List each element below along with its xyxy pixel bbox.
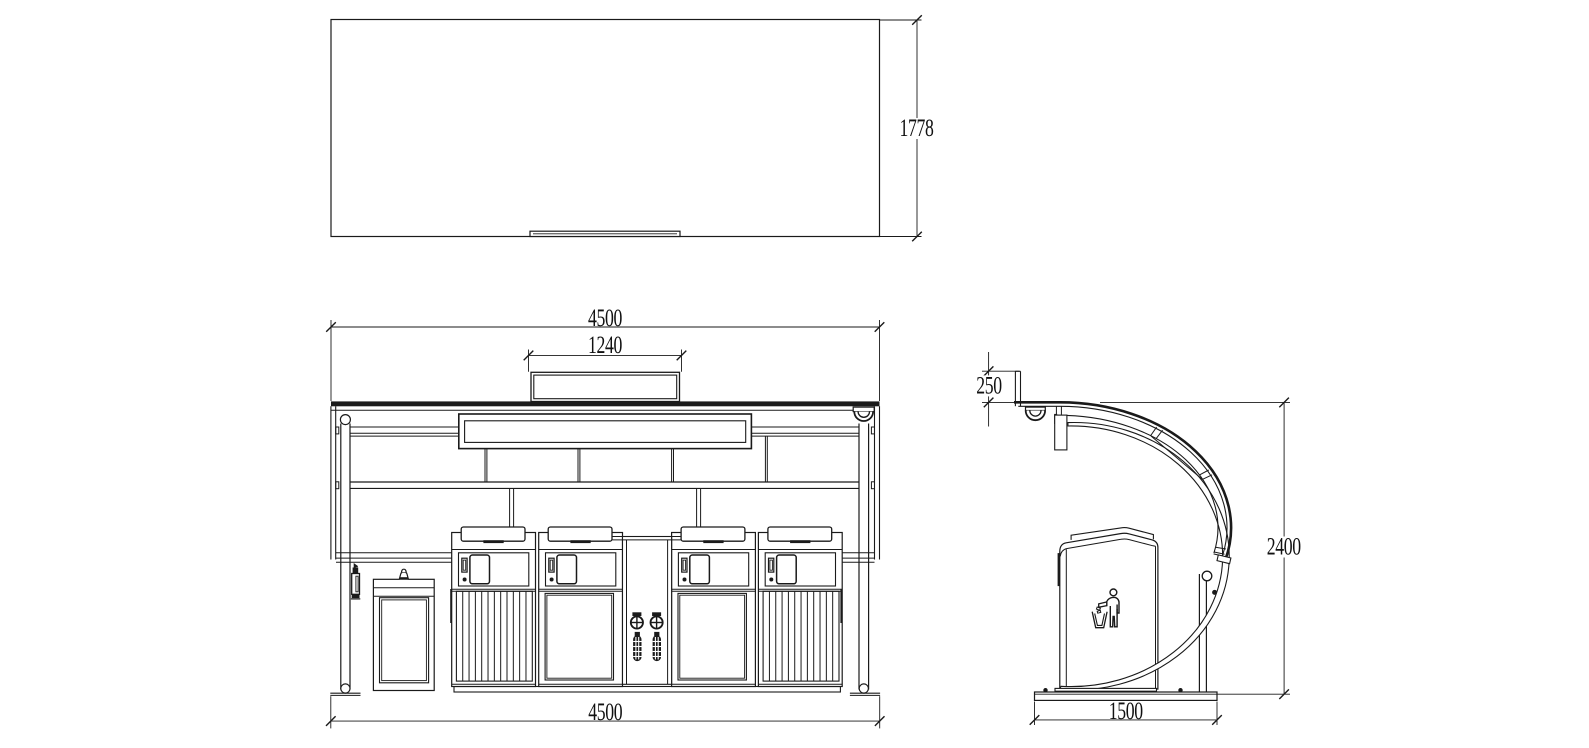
svg-text:4500: 4500 xyxy=(588,305,622,332)
svg-text:250: 250 xyxy=(976,372,1002,399)
svg-text:1500: 1500 xyxy=(1109,698,1143,725)
svg-text:1778: 1778 xyxy=(900,115,934,142)
svg-text:4500: 4500 xyxy=(588,699,622,726)
svg-text:1240: 1240 xyxy=(588,332,622,359)
svg-text:2400: 2400 xyxy=(1267,534,1301,561)
